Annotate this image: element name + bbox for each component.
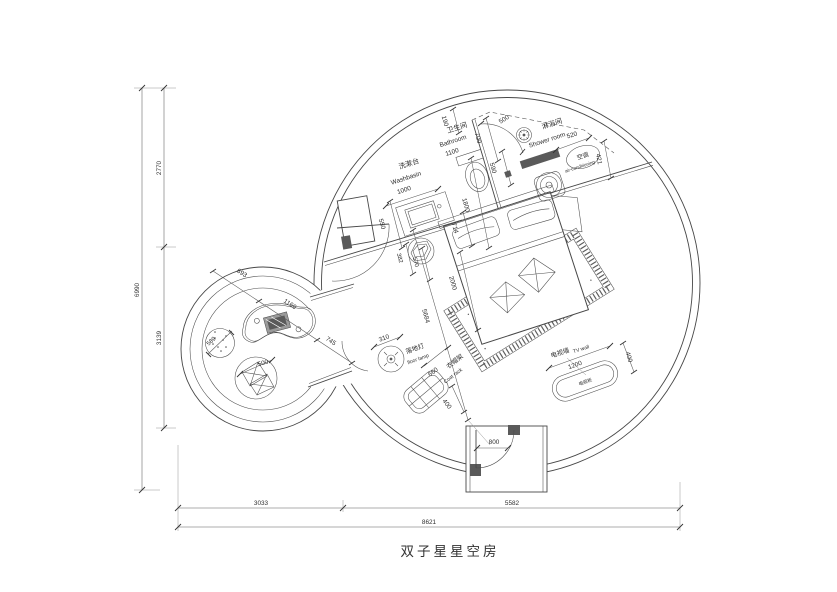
shower-head-icon — [517, 128, 532, 143]
entry-vestibule: 800 — [466, 425, 547, 492]
dim-left-6990: 6990 — [134, 282, 141, 297]
left-dimension-lines: 6990 2770 3139 — [134, 85, 176, 493]
drawing-title: 双子星星空房 — [401, 544, 500, 559]
dim-left-2770: 2770 — [156, 160, 163, 175]
dim-bottom-8621: 8621 — [422, 519, 437, 526]
dim-door-800: 800 — [489, 439, 500, 446]
dim-bottom-3033: 3033 — [254, 500, 269, 507]
dim-bottom-5582: 5582 — [505, 500, 520, 507]
door-hinge-block — [470, 464, 481, 476]
floorplan-drawing: 800 500 — [0, 0, 837, 592]
corridor-opening-mask — [309, 281, 360, 391]
dim-left-3139: 3139 — [156, 330, 163, 345]
floorplan-page: 800 500 — [0, 0, 837, 592]
